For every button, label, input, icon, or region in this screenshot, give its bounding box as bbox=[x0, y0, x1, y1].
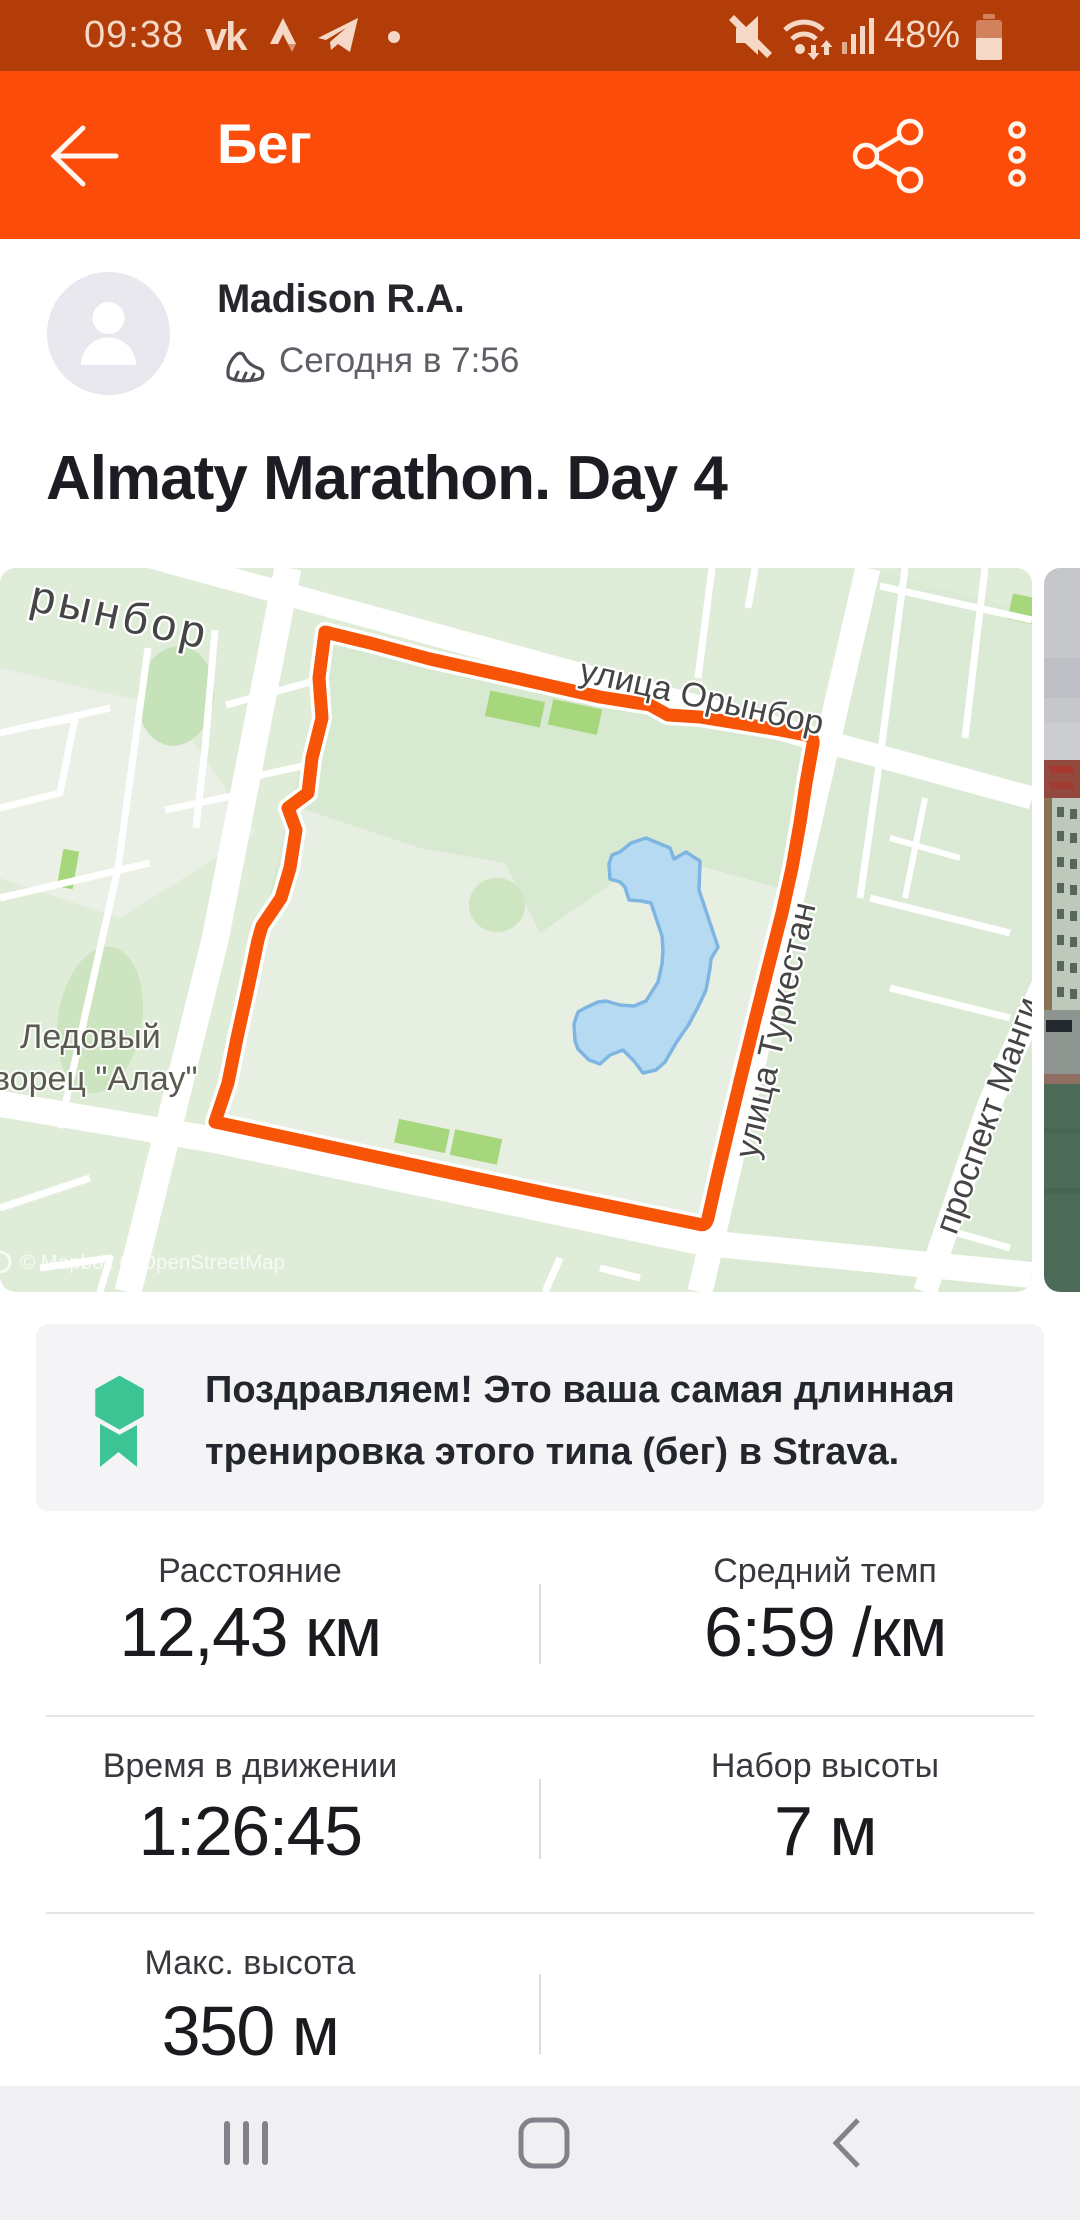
svg-text:ворец "Алау": ворец "Алау" bbox=[0, 1060, 198, 1098]
svg-text:Ледовый: Ледовый bbox=[20, 1018, 161, 1056]
svg-text:© Mapbox © OpenStreetMap: © Mapbox © OpenStreetMap bbox=[20, 1251, 285, 1274]
svg-text:vk: vk bbox=[205, 15, 248, 59]
